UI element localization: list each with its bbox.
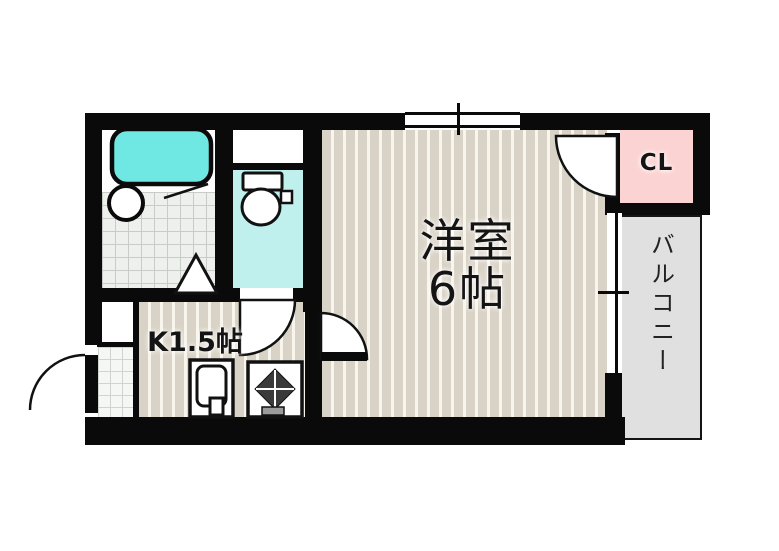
entrance-door-arc	[30, 355, 85, 410]
bathtub	[112, 129, 211, 184]
balcony-label: バルコニー	[644, 232, 679, 377]
balcony-label-box: バルコニー	[620, 232, 702, 432]
top-window-center-tick	[457, 103, 460, 135]
bathroom-folding-door-icon	[175, 255, 217, 293]
top-window	[405, 111, 520, 130]
closet-door-arc	[556, 136, 617, 197]
main-room-name: 洋室	[360, 218, 575, 266]
main-room-size: 6帖	[360, 266, 575, 314]
stove-grill	[262, 407, 284, 415]
kitchen-sink-drain	[210, 398, 223, 415]
toilet-flush-handle	[281, 191, 292, 203]
main-room-label: 洋室 6帖	[360, 218, 575, 314]
kitchen-label: K1.5帖	[135, 320, 255, 359]
top-window-outer-line	[405, 112, 520, 115]
top-window-inner-line	[405, 125, 520, 128]
floor-plan: 洋室 6帖 K1.5帖 CL バルコニー	[0, 0, 779, 551]
toilet-tank	[243, 173, 282, 190]
mainroom-door-open-leaf	[321, 352, 367, 361]
closet-label: CL	[620, 150, 693, 176]
washbasin	[109, 186, 143, 220]
toilet-bowl	[242, 189, 280, 225]
